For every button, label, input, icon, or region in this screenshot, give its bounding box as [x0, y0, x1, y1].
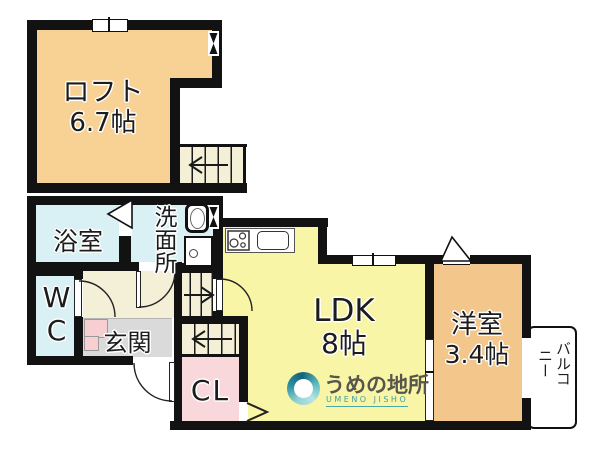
stairs-edge [179, 144, 247, 147]
western-room-name: 洋室 [451, 310, 503, 340]
bath-door-gap [120, 205, 132, 236]
door-panel [169, 362, 175, 402]
wall [318, 255, 354, 264]
door-panel [136, 271, 141, 308]
loft-label: ロフト 6.7帖 [33, 78, 173, 138]
window [92, 19, 128, 32]
entrance-door-arc-icon [134, 363, 172, 401]
western-room-door-gap [443, 255, 470, 265]
sink-icon [257, 231, 289, 250]
door-panel [74, 279, 82, 317]
room-loft [170, 30, 212, 78]
fan-icon [208, 205, 219, 229]
wall [119, 236, 131, 263]
wall [27, 183, 247, 193]
wall [74, 267, 83, 279]
wall [239, 316, 248, 402]
loft-size: 6.7帖 [69, 108, 136, 138]
wc-label: WC [40, 277, 72, 351]
stairs-edge [243, 147, 246, 183]
wall [27, 196, 36, 365]
ldk-label: LDK 8帖 [288, 294, 400, 360]
ldk-size: 8帖 [321, 327, 367, 360]
entrance-label: 玄関 [83, 323, 172, 358]
wall [222, 218, 328, 227]
vanity-icon [185, 203, 209, 233]
western-room-size: 3.4帖 [445, 340, 510, 369]
window [352, 255, 396, 266]
wall [174, 262, 182, 430]
washroom-label: 洗面所 [149, 199, 177, 279]
stairs-lower [182, 324, 239, 354]
washer-pan-icon [184, 236, 213, 267]
company-name-en: UMENO JISHO [326, 395, 408, 407]
floor-plan: ロフト 6.7帖 浴室 洗面所 WC 玄関 CL LDK 8帖 洋室 3.4帖 … [0, 0, 600, 449]
window-divider [372, 253, 374, 266]
loft-name: ロフト [63, 77, 144, 108]
stairs-edge [182, 354, 239, 357]
western-room-label: 洋室 3.4帖 [430, 310, 524, 370]
window-divider [108, 17, 110, 32]
wall [170, 421, 531, 430]
stairs-loft [180, 147, 243, 183]
wall [394, 255, 443, 264]
closet-label: CL [182, 374, 239, 407]
door-panel [216, 279, 223, 311]
stairs-upper [180, 273, 213, 316]
bathroom-label: 浴室 [36, 222, 120, 258]
logo-mark [287, 372, 320, 405]
fan-icon [208, 31, 219, 56]
wall [174, 316, 247, 324]
ldk-name: LDK [313, 293, 374, 329]
balcony-label: バルコニー [530, 336, 572, 390]
